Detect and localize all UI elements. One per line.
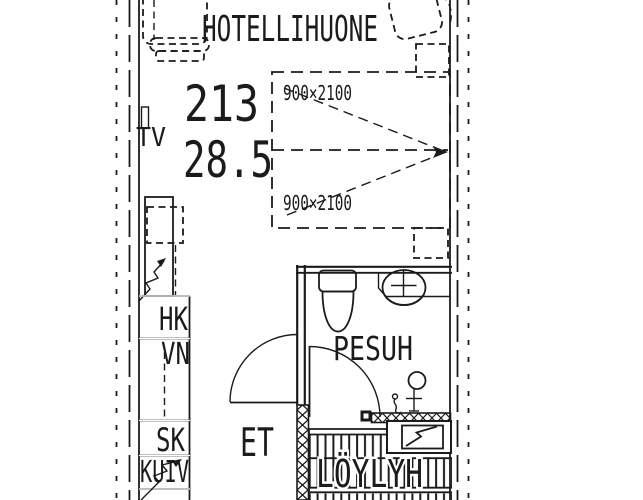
opening-arrow: [139, 261, 164, 301]
sauna-label: LÖYLYH: [316, 452, 423, 496]
room-area: 28.5: [183, 131, 273, 189]
closet-label-vn: VN: [161, 337, 190, 372]
sink-icon: [379, 270, 452, 306]
bed-size-label-bottom: 900×2100: [283, 191, 352, 215]
tv-label: TV: [136, 123, 166, 153]
room-title: HOTELLIHUONE: [202, 9, 378, 50]
room-number: 213: [184, 75, 259, 133]
floorplan-drawing: HOTELLIHUONE 213 28.5 900×2100 900×2100 …: [0, 0, 643, 500]
desk: [139, 197, 183, 301]
sauna-heater-icon: [387, 421, 451, 453]
bed-size-label-top: 900×2100: [283, 81, 352, 105]
nightstand-bottom: [414, 228, 448, 258]
shower-icon: [393, 372, 426, 413]
chair: [387, 0, 455, 41]
wall-right: [450, 0, 469, 500]
closet-label-hk: HK: [159, 300, 189, 338]
entry-label: ET: [240, 421, 274, 466]
wall-left: [117, 0, 140, 500]
bathroom-label: PESUH: [333, 329, 413, 368]
bathroom-door-arc: [230, 335, 298, 403]
closet-label-sk: SK: [156, 421, 186, 459]
sauna-wall-west-hatch: [297, 405, 309, 500]
bed-direction-arrow: [433, 146, 448, 158]
closet-column: HK VN SK KUIV: [139, 296, 190, 500]
toilet-icon: [319, 271, 356, 332]
armchair: [143, 0, 209, 61]
floorplan-canvas: HOTELLIHUONE 213 28.5 900×2100 900×2100 …: [0, 0, 643, 500]
bathroom-door: [230, 335, 298, 403]
